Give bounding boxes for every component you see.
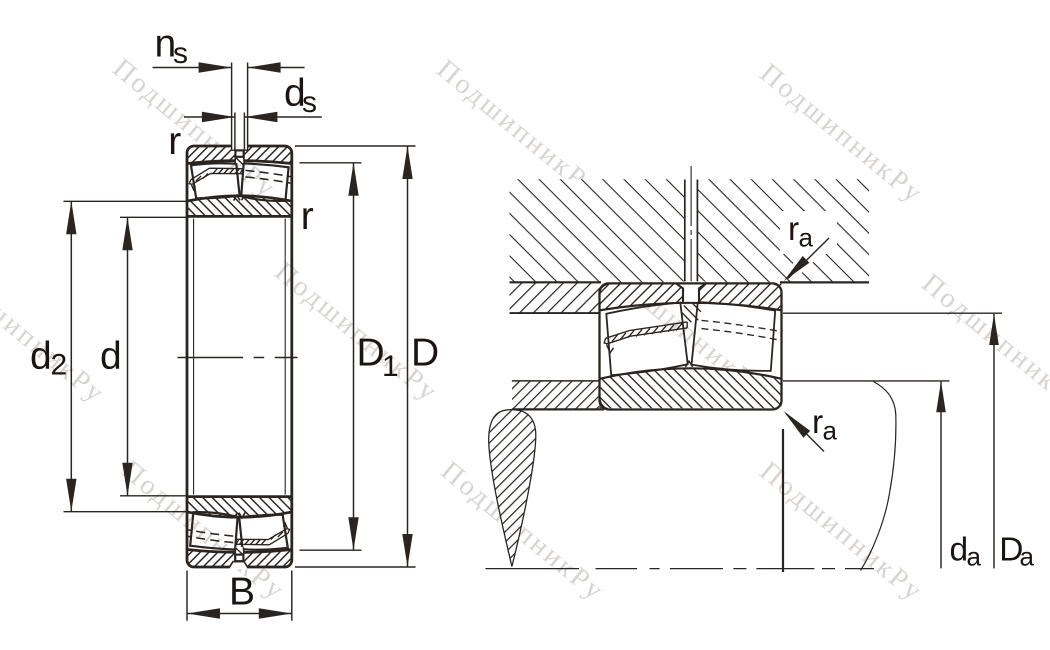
svg-text:D: D — [357, 332, 385, 375]
svg-text:d: d — [100, 335, 122, 378]
svg-text:a: a — [799, 223, 814, 253]
svg-text:B: B — [229, 570, 255, 613]
svg-text:s: s — [173, 37, 188, 70]
svg-text:D: D — [411, 332, 439, 375]
svg-text:r: r — [788, 211, 799, 248]
svg-text:d: d — [950, 532, 969, 569]
svg-text:r: r — [168, 120, 181, 163]
svg-text:r: r — [301, 195, 314, 238]
svg-text:2: 2 — [51, 349, 68, 382]
svg-text:a: a — [1020, 542, 1035, 572]
svg-text:a: a — [823, 416, 838, 446]
svg-text:r: r — [812, 404, 823, 441]
svg-text:d: d — [30, 335, 52, 378]
svg-text:a: a — [967, 542, 982, 572]
svg-text:s: s — [302, 86, 317, 119]
svg-text:1: 1 — [382, 350, 399, 383]
